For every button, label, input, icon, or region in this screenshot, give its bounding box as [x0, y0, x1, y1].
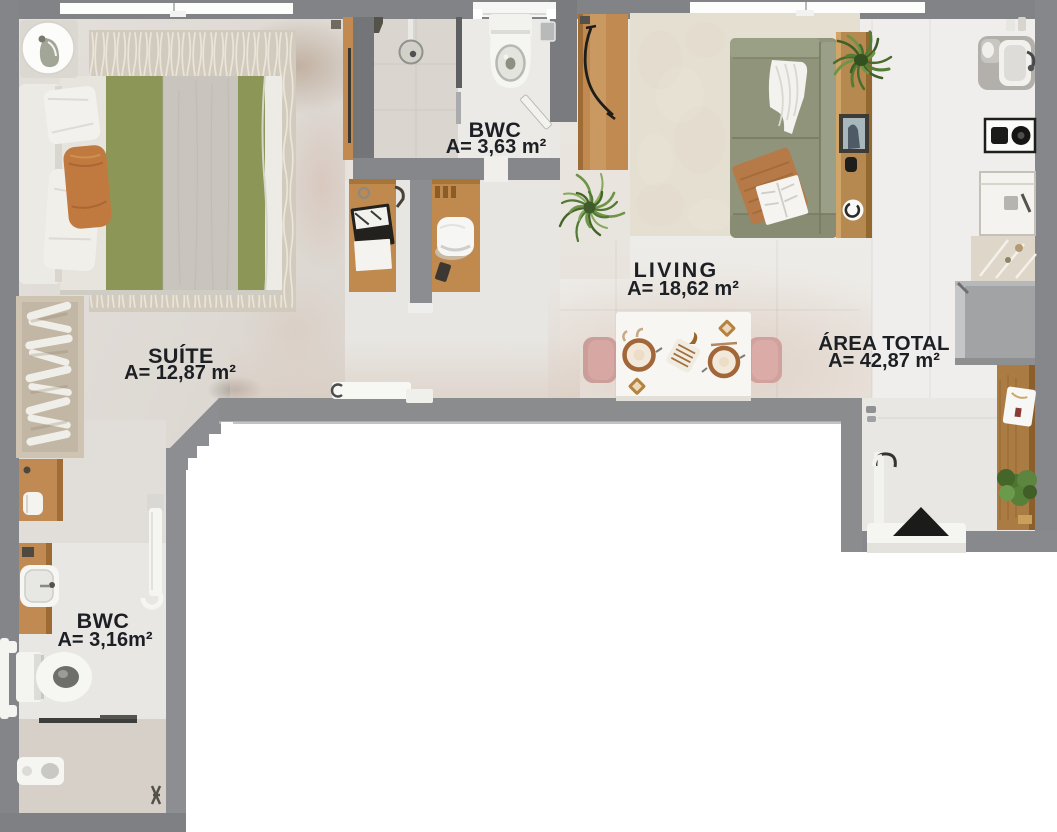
- svg-text:A= 42,87 m²: A= 42,87 m²: [828, 350, 940, 372]
- svg-text:A= 3,16m²: A= 3,16m²: [57, 629, 152, 651]
- svg-text:A= 12,87 m²: A= 12,87 m²: [124, 362, 236, 384]
- svg-text:A= 3,63 m²: A= 3,63 m²: [446, 136, 547, 158]
- svg-text:A= 18,62 m²: A= 18,62 m²: [627, 278, 739, 300]
